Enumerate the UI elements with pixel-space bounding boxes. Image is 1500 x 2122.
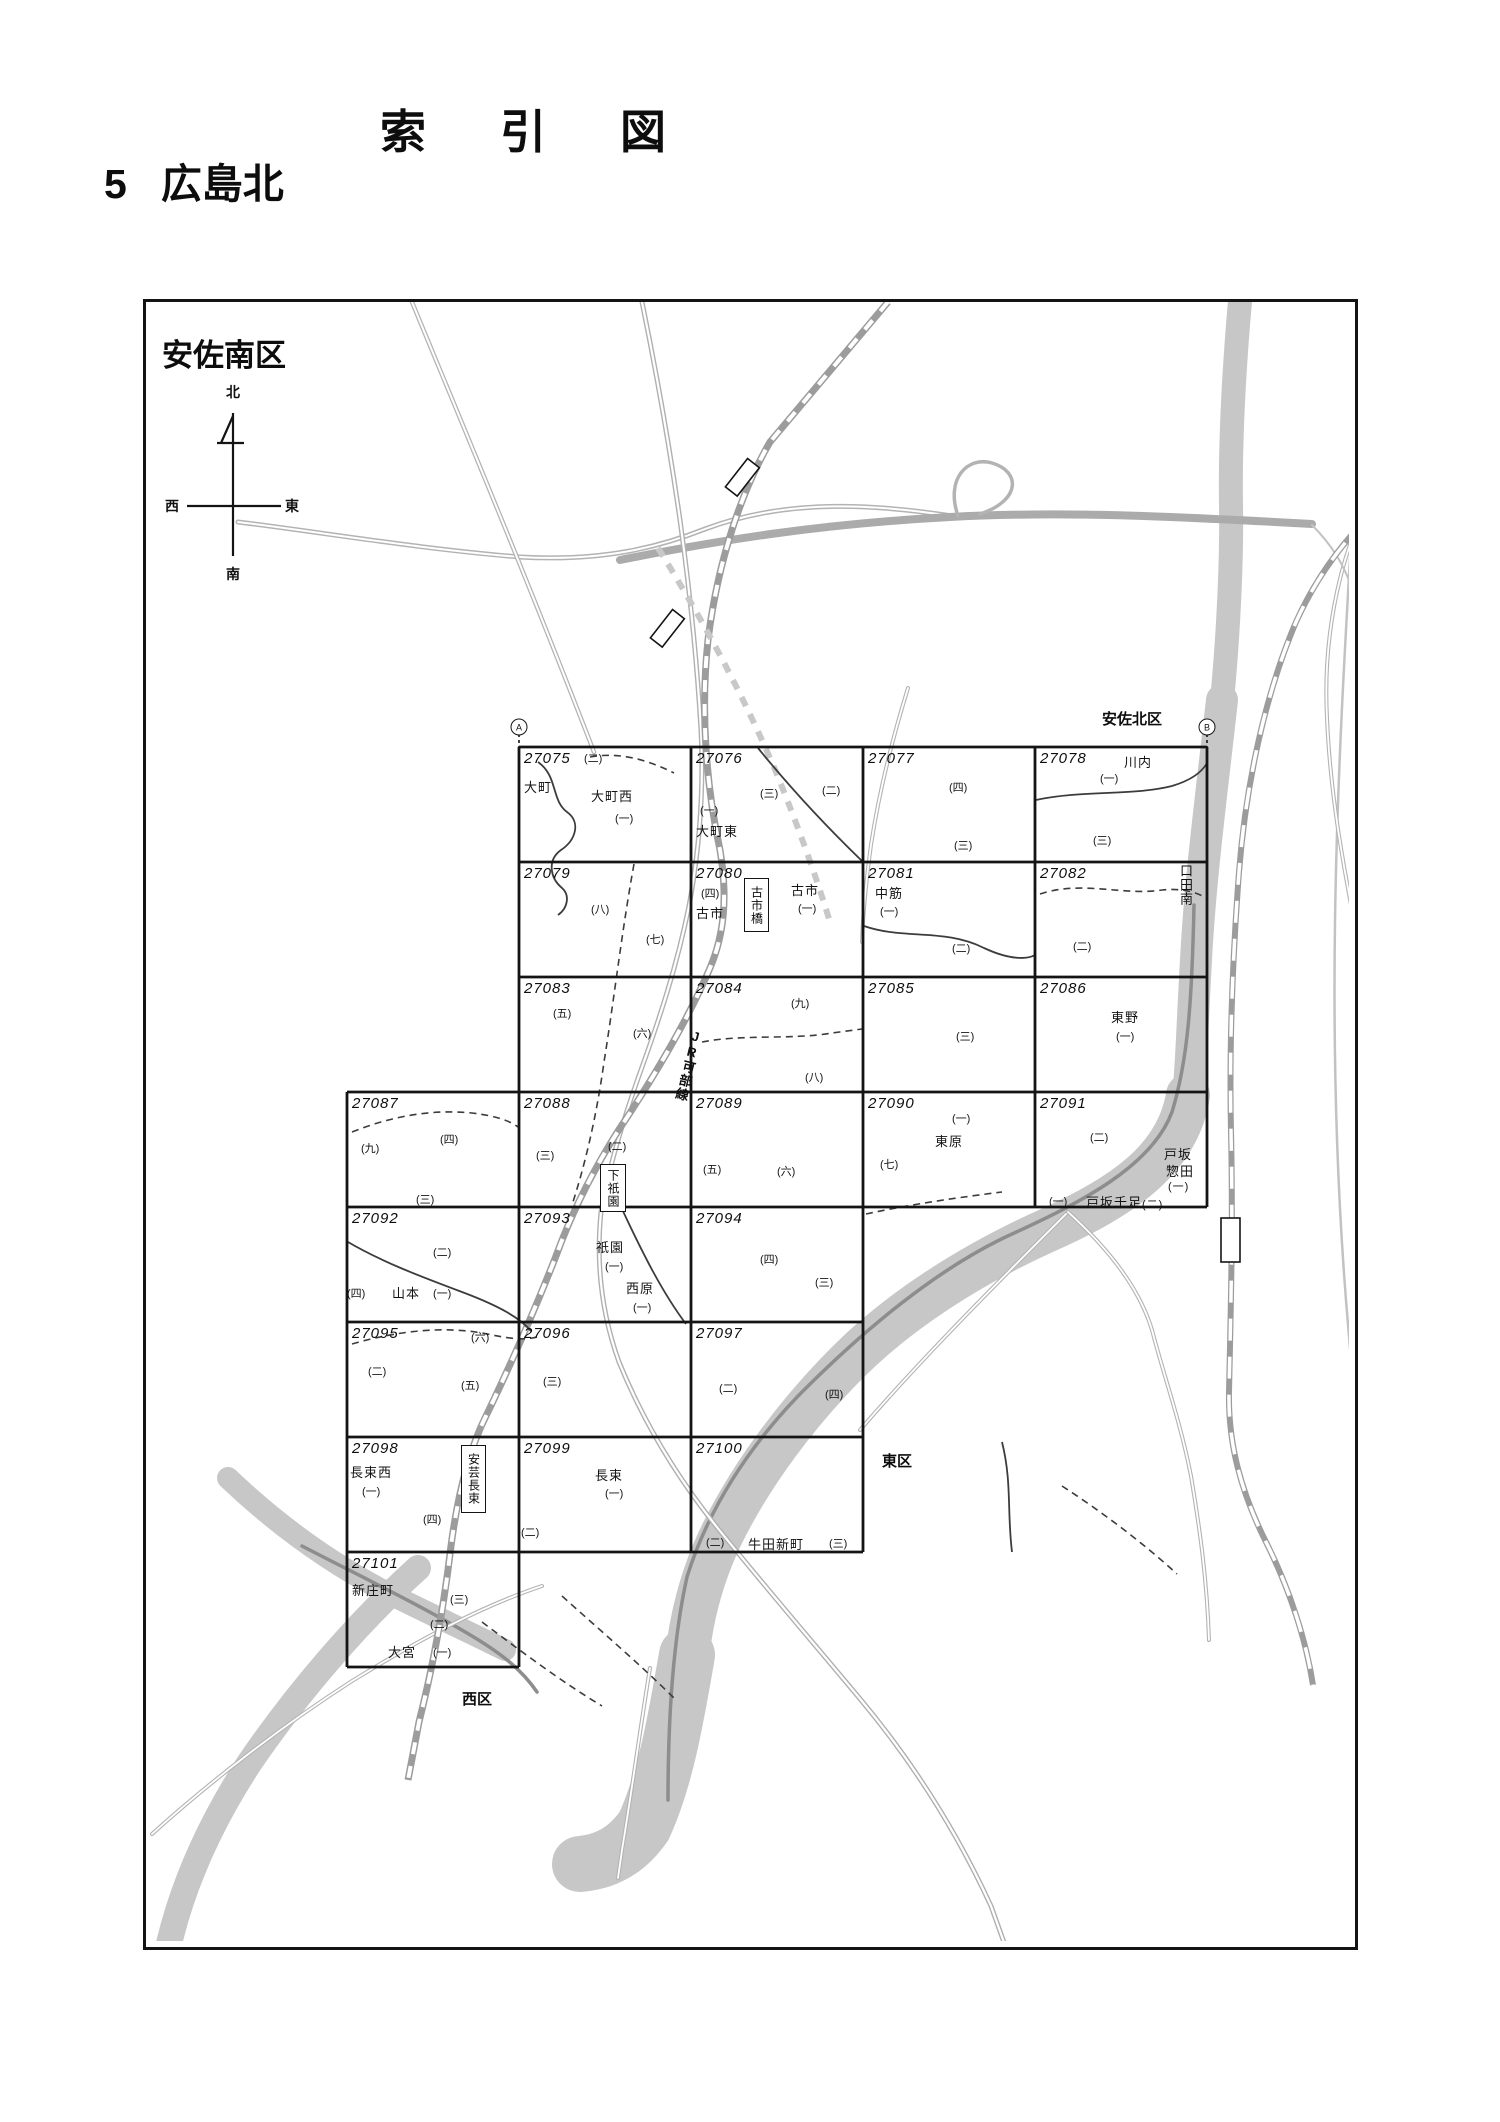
chome-label: (九) <box>361 1140 379 1156</box>
compass-label-west: 西 <box>165 496 179 516</box>
map-place-label: 戸坂千足 <box>1086 1192 1142 1211</box>
chome-label: (一) <box>633 1299 651 1315</box>
sheet-number: 27094 <box>696 1210 743 1227</box>
grid-cell-27079[interactable]: 27079(八)(七) <box>519 862 691 977</box>
compass-label-east: 東 <box>285 496 299 516</box>
chome-label: (二) <box>706 1534 724 1550</box>
chome-label: (二) <box>433 1244 451 1260</box>
district-label: 祇園 <box>596 1237 624 1256</box>
grid-cell-27076[interactable]: 27076(三)(二)(一)大町東 <box>691 747 863 862</box>
chome-label: (一) <box>615 810 633 826</box>
chome-label: (五) <box>461 1377 479 1393</box>
chome-label: (三) <box>956 1028 974 1044</box>
grid-cell-27094[interactable]: 27094(四)(三) <box>691 1207 863 1322</box>
chome-label: (四) <box>440 1131 458 1147</box>
chome-label: (四) <box>423 1511 441 1527</box>
grid-cell-27100[interactable]: 27100(二)牛田新町(三) <box>691 1437 863 1552</box>
grid-cell-27084[interactable]: 27084(九)(八) <box>691 977 863 1092</box>
district-label: 大町東 <box>696 821 738 840</box>
sheet-number: 27092 <box>352 1210 399 1227</box>
grid-cell-27081[interactable]: 27081中筋(一)(二) <box>863 862 1035 977</box>
grid-cell-27101[interactable]: 27101新庄町(三)(二)大宮(一) <box>347 1552 519 1667</box>
sheet-number: 27075 <box>524 750 571 767</box>
sheet-number: 27083 <box>524 980 571 997</box>
chome-label: (三) <box>536 1147 554 1163</box>
chome-label: (六) <box>777 1163 795 1179</box>
chome-label: (三) <box>815 1274 833 1290</box>
chome-label: (三) <box>543 1373 561 1389</box>
chome-label: (二) <box>1073 938 1091 954</box>
region-label: 西区 <box>462 1688 492 1709</box>
district-label: 古市 <box>696 903 724 922</box>
station-box: 安芸長束 <box>461 1445 486 1513</box>
compass-label-south: 南 <box>226 564 240 584</box>
district-label: 新庄町 <box>352 1580 394 1599</box>
grid-cell-27078[interactable]: 27078川内(一)(三) <box>1035 747 1207 862</box>
chome-label: (八) <box>805 1069 823 1085</box>
region-label: 安佐南区 <box>162 330 286 375</box>
chome-label: (一) <box>952 1110 970 1126</box>
grid-cell-27097[interactable]: 27097(二)(四) <box>691 1322 863 1437</box>
chome-label: (三) <box>829 1535 847 1551</box>
sheet-number: 27098 <box>352 1440 399 1457</box>
sheet-number: 27084 <box>696 980 743 997</box>
chome-label: (三) <box>416 1191 434 1207</box>
chome-label: (五) <box>703 1161 721 1177</box>
chome-label: (一) <box>798 900 816 916</box>
sheet-number: 27091 <box>1040 1095 1087 1112</box>
sheet-number: 27085 <box>868 980 915 997</box>
grid-cell-27080[interactable]: 27080(四)古市古市(一) <box>691 862 863 977</box>
chome-label: (四) <box>949 779 967 795</box>
district-label: 大町西 <box>591 786 633 805</box>
sheet-number: 27100 <box>696 1440 743 1457</box>
grid-cell-27077[interactable]: 27077(四)(三) <box>863 747 1035 862</box>
sheet-number: 27089 <box>696 1095 743 1112</box>
corner-marker-b: B <box>1199 719 1216 736</box>
chome-label: (二) <box>521 1524 539 1540</box>
chome-label: (四) <box>347 1285 365 1301</box>
chome-label: (二) <box>822 782 840 798</box>
chome-label: (一) <box>1116 1028 1134 1044</box>
sheet-number: 27077 <box>868 750 915 767</box>
sheet-number: 27080 <box>696 865 743 882</box>
chome-label: (二) <box>1090 1129 1108 1145</box>
chome-label: (一) <box>1049 1193 1067 1209</box>
chome-label: (四) <box>825 1386 843 1402</box>
sheet-number: 27079 <box>524 865 571 882</box>
grid-cell-27095[interactable]: 27095(六)(二)(五) <box>347 1322 519 1437</box>
chome-label: (二) <box>584 750 602 766</box>
chome-label: (九) <box>791 995 809 1011</box>
grid-cell-27090[interactable]: 27090(一)東原(七) <box>863 1092 1035 1207</box>
grid-cell-27086[interactable]: 27086東野(一) <box>1035 977 1207 1092</box>
sheet-number: 27081 <box>868 865 915 882</box>
sheet-number: 27078 <box>1040 750 1087 767</box>
region-label: 安佐北区 <box>1102 708 1162 729</box>
grid-cell-27085[interactable]: 27085(三) <box>863 977 1035 1092</box>
sheet-number: 27096 <box>524 1325 571 1342</box>
district-label: 古市 <box>791 880 819 899</box>
index-map-page: 索引図 5広島北 <box>0 0 1500 2122</box>
chome-label: (一) <box>433 1644 451 1660</box>
chome-label: (五) <box>553 1005 571 1021</box>
sheet-number: 27082 <box>1040 865 1087 882</box>
map-place-label: (二) <box>1142 1196 1163 1212</box>
district-label: 牛田新町 <box>748 1534 804 1553</box>
district-label: 東原 <box>935 1131 963 1150</box>
chome-label: (六) <box>471 1329 489 1345</box>
grid-cell-27098[interactable]: 27098長束西(一)(四) <box>347 1437 519 1552</box>
grid-cell-27087[interactable]: 27087(九)(四)(三) <box>347 1092 519 1207</box>
chome-label: (六) <box>633 1025 651 1041</box>
district-label: 西原 <box>626 1278 654 1297</box>
district-label: 川内 <box>1124 752 1152 771</box>
compass-label-north: 北 <box>226 382 240 402</box>
grid-cell-27096[interactable]: 27096(三) <box>519 1322 691 1437</box>
chome-label: (四) <box>760 1251 778 1267</box>
sheet-number: 27076 <box>696 750 743 767</box>
chome-label: (三) <box>450 1591 468 1607</box>
grid-cell-27089[interactable]: 27089(五)(六) <box>691 1092 863 1207</box>
district-label: 中筋 <box>875 883 903 902</box>
map-place-label: (一) <box>1168 1178 1189 1194</box>
grid-cell-27093[interactable]: 27093祇園(一)西原(一) <box>519 1207 691 1322</box>
sheet-number: 27088 <box>524 1095 571 1112</box>
station-box: 下祇園 <box>600 1164 626 1212</box>
district-label: 長束西 <box>350 1462 392 1481</box>
chome-label: (四) <box>701 885 719 901</box>
chome-label: (一) <box>605 1485 623 1501</box>
chome-label: (一) <box>880 903 898 919</box>
chome-label: (三) <box>1093 832 1111 848</box>
sheet-number: 27093 <box>524 1210 571 1227</box>
district-label: 山本 <box>392 1283 420 1302</box>
sheet-number: 27095 <box>352 1325 399 1342</box>
chome-label: (三) <box>760 785 778 801</box>
chome-label: (一) <box>433 1285 451 1301</box>
sheet-number: 27097 <box>696 1325 743 1342</box>
chome-label: (一) <box>362 1483 380 1499</box>
map-place-label: 口田南 <box>1176 864 1195 906</box>
chome-label: (二) <box>368 1363 386 1379</box>
region-label: 東区 <box>882 1450 912 1471</box>
district-label: 大宮 <box>388 1642 416 1661</box>
chome-label: (一) <box>1100 770 1118 786</box>
chome-label: (二) <box>952 940 970 956</box>
sheet-number: 27086 <box>1040 980 1087 997</box>
station-box: 古市橋 <box>744 878 769 932</box>
grid-cell-27083[interactable]: 27083(五)(六) <box>519 977 691 1092</box>
chome-label: (一) <box>700 802 718 818</box>
district-label: 長束 <box>595 1465 623 1484</box>
grid-cell-27075[interactable]: 27075(二)大町大町西(一) <box>519 747 691 862</box>
chome-label: (七) <box>646 931 664 947</box>
district-label: 大町 <box>524 777 552 796</box>
chome-label: (三) <box>954 837 972 853</box>
chome-label: (一) <box>605 1258 623 1274</box>
chome-label: (八) <box>591 901 609 917</box>
district-label: 東野 <box>1111 1007 1139 1026</box>
sheet-number: 27087 <box>352 1095 399 1112</box>
sheet-number: 27090 <box>868 1095 915 1112</box>
chome-label: (二) <box>719 1380 737 1396</box>
grid-cell-27092[interactable]: 27092(二)(四)山本(一) <box>347 1207 519 1322</box>
corner-marker-a: A <box>511 719 528 736</box>
chome-label: (七) <box>880 1156 898 1172</box>
sheet-number: 27101 <box>352 1555 399 1572</box>
chome-label: (二) <box>430 1616 448 1632</box>
grid-cell-27099[interactable]: 27099長束(一)(二) <box>519 1437 691 1552</box>
map-label-layer: 27075(二)大町大町西(一)27076(三)(二)(一)大町東27077(四… <box>0 0 1500 2122</box>
sheet-number: 27099 <box>524 1440 571 1457</box>
chome-label: (二) <box>608 1138 626 1154</box>
